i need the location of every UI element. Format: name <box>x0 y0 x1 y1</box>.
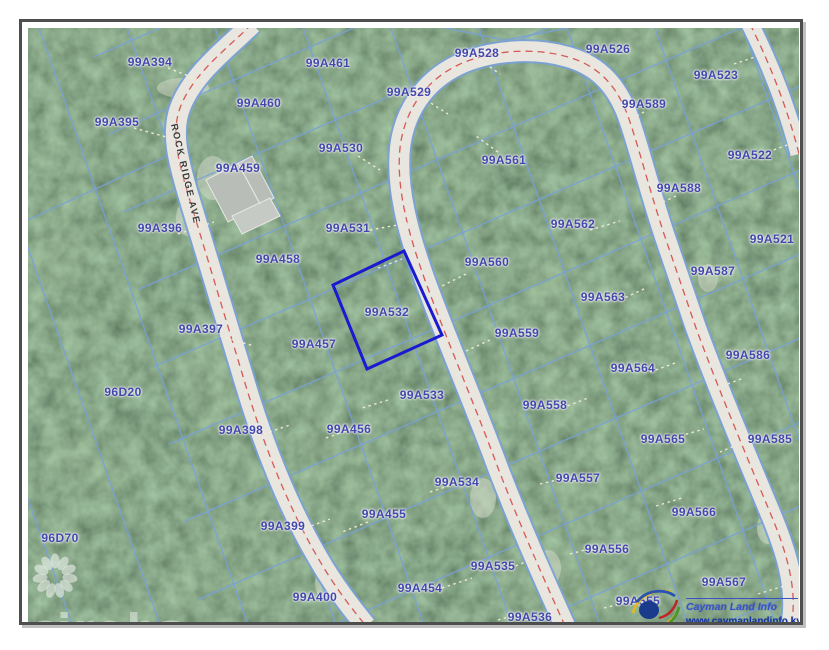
map-image: ROCK RIDGE AVE 99A39499A39599A46099A4599… <box>28 28 799 622</box>
aerial-map-canvas <box>28 28 799 622</box>
screenshot-root: ROCK RIDGE AVE 99A39499A39599A46099A4599… <box>0 0 829 650</box>
